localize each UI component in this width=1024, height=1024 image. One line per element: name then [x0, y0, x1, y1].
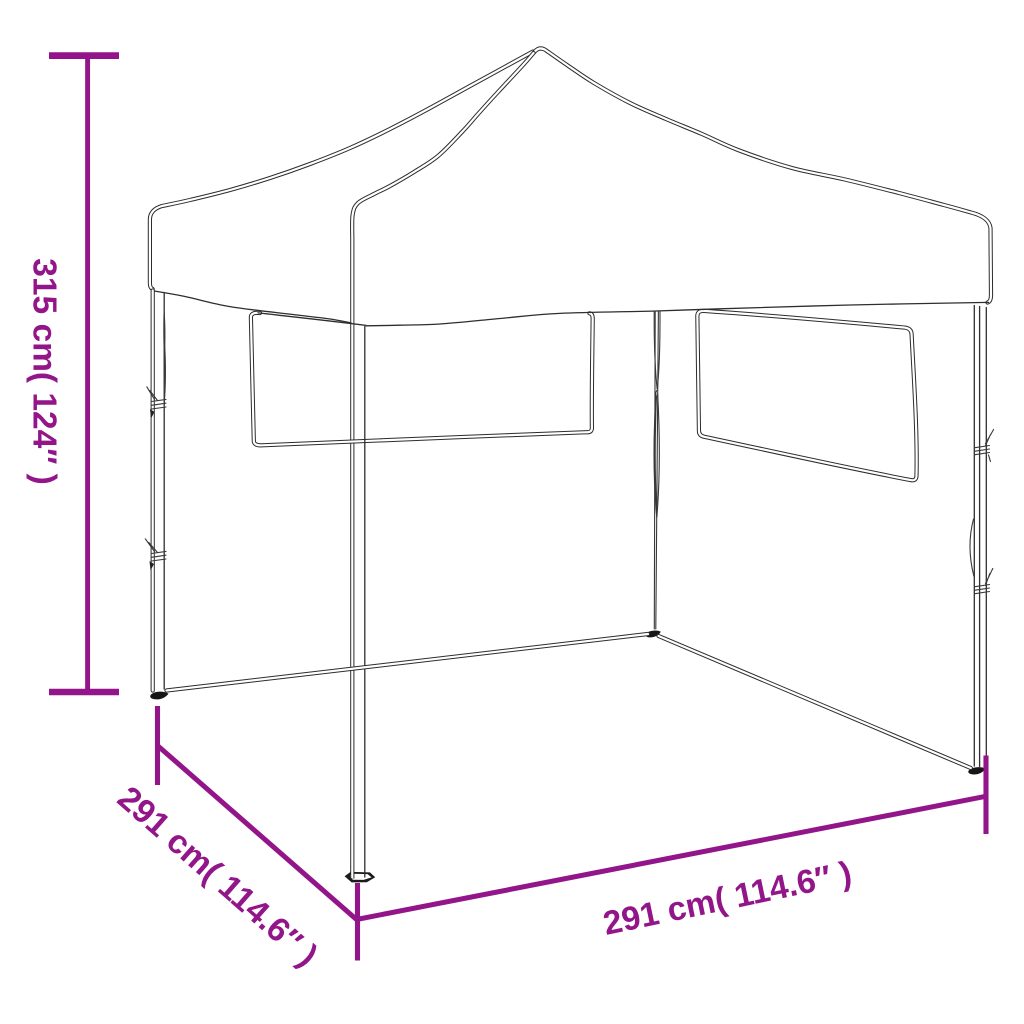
svg-text:315 cm( 124″ ): 315 cm( 124″ ) — [25, 258, 62, 485]
